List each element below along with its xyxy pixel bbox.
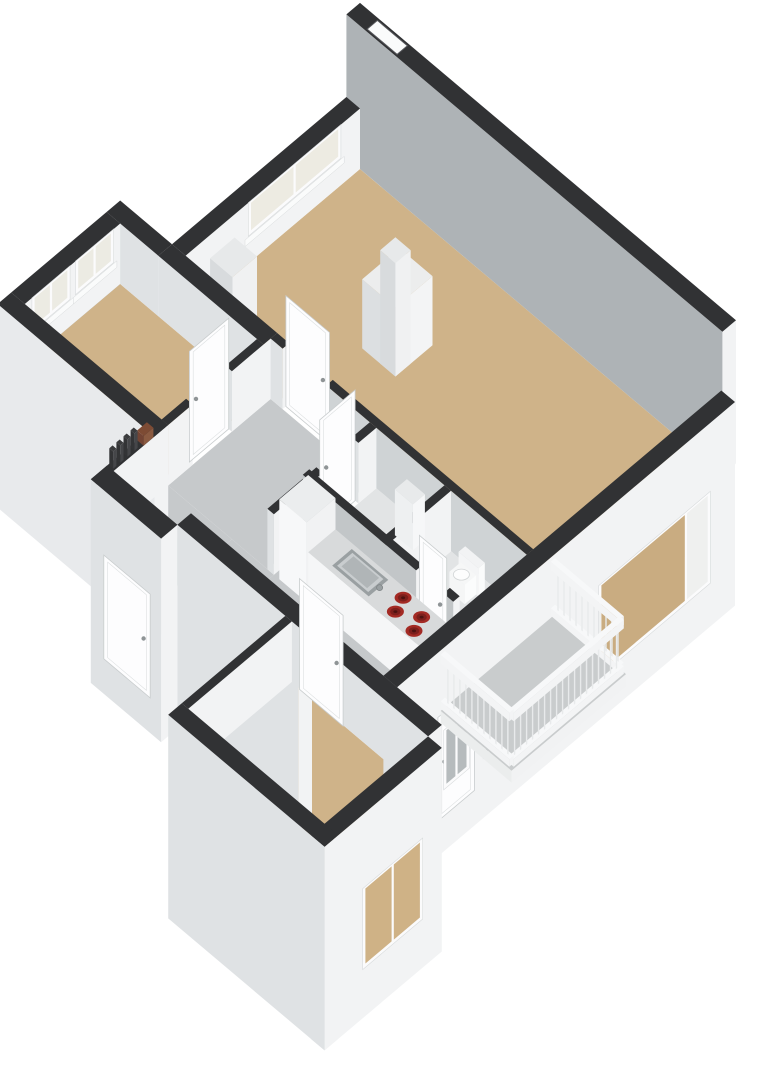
door-bathroom-handle bbox=[324, 465, 328, 469]
balcony-railing-east-baluster bbox=[592, 651, 594, 690]
balcony-railing-east-baluster bbox=[538, 696, 539, 735]
door-bedroom-2-handle bbox=[334, 661, 338, 665]
meter-bar-1-face-v bbox=[131, 430, 135, 451]
balcony-railing-east-baluster bbox=[562, 676, 563, 715]
balcony-railing-east-baluster bbox=[574, 666, 575, 705]
balcony-railing-south-baluster bbox=[453, 670, 454, 709]
balcony-railing-north-baluster bbox=[587, 598, 588, 637]
balcony-railing-east-baluster bbox=[526, 706, 527, 745]
meter-bar-2-face-u bbox=[127, 437, 130, 457]
balcony-railing-east-baluster bbox=[616, 630, 617, 669]
floorplan-3d-render bbox=[0, 0, 768, 1086]
balcony-railing-east-baluster bbox=[556, 681, 557, 720]
door-living-room-handle bbox=[321, 378, 325, 382]
floorplan-svg bbox=[0, 0, 768, 1086]
balcony-railing-south-baluster bbox=[447, 665, 448, 704]
balcony-railing-south-baluster bbox=[471, 685, 472, 724]
balcony-railing-north-baluster bbox=[575, 588, 576, 627]
balcony-railing-east-baluster bbox=[568, 671, 569, 710]
meter-bar-1-face-u bbox=[134, 431, 137, 451]
balcony-railing-east-baluster bbox=[532, 701, 533, 740]
toilet-seat bbox=[453, 569, 469, 580]
balcony-railing-south-baluster bbox=[465, 680, 466, 719]
balcony-railing-south-baluster bbox=[459, 675, 460, 714]
balcony-railing-east-baluster bbox=[604, 640, 606, 679]
balcony-railing-east-baluster bbox=[598, 645, 600, 684]
kitchen-faucet bbox=[377, 585, 383, 591]
balcony-railing-north-baluster bbox=[593, 603, 594, 642]
balcony-railing-north-baluster bbox=[581, 593, 582, 632]
window-living-southeast-glass-1 bbox=[687, 496, 708, 599]
balcony-railing-east-baluster bbox=[514, 716, 515, 755]
balcony-railing-south-baluster bbox=[501, 711, 502, 750]
balcony-railing-east-baluster bbox=[544, 691, 545, 730]
wall-hall-east-b-face-v bbox=[267, 509, 274, 575]
wall-living-divider-a-face-v bbox=[271, 339, 283, 410]
balcony-railing-south-baluster bbox=[483, 696, 484, 735]
stove-burner-4-core bbox=[412, 630, 416, 633]
balcony-railing-east-baluster bbox=[580, 661, 581, 700]
door-bedroom-1-handle bbox=[194, 397, 198, 401]
balcony-railing-north-baluster bbox=[569, 582, 570, 621]
door-entry-handle bbox=[141, 636, 145, 640]
meter-bar-4-face-u bbox=[113, 449, 116, 469]
stove-burner-2-core bbox=[420, 616, 424, 619]
stove-burner-3-core bbox=[393, 610, 397, 613]
balcony-railing-south-baluster bbox=[495, 706, 496, 745]
chimney-column-face-u bbox=[395, 250, 410, 376]
balcony-railing-east-baluster bbox=[610, 635, 611, 674]
wall-bedroom2-southwest-face-u bbox=[325, 835, 339, 1050]
chimney-column-face-v bbox=[380, 250, 395, 376]
balcony-railing-east-baluster bbox=[520, 711, 521, 750]
balcony-railing-east-baluster bbox=[586, 656, 588, 695]
balcony-railing-north-baluster bbox=[563, 577, 564, 616]
balcony-railing-south-baluster bbox=[489, 701, 490, 740]
meter-bar-3-face-u bbox=[120, 443, 123, 463]
meter-bar-2-face-v bbox=[124, 436, 128, 457]
stove-burner-1-core bbox=[401, 596, 405, 599]
balcony-railing-north-baluster bbox=[557, 572, 558, 611]
door-wc-handle bbox=[438, 602, 442, 606]
meter-bar-3-face-v bbox=[116, 442, 120, 463]
meter-bar-4-face-v bbox=[109, 448, 113, 469]
balcony-railing-east-baluster bbox=[550, 686, 551, 725]
balcony-railing-south-baluster bbox=[477, 691, 478, 730]
balcony-railing-south-baluster bbox=[507, 716, 509, 755]
